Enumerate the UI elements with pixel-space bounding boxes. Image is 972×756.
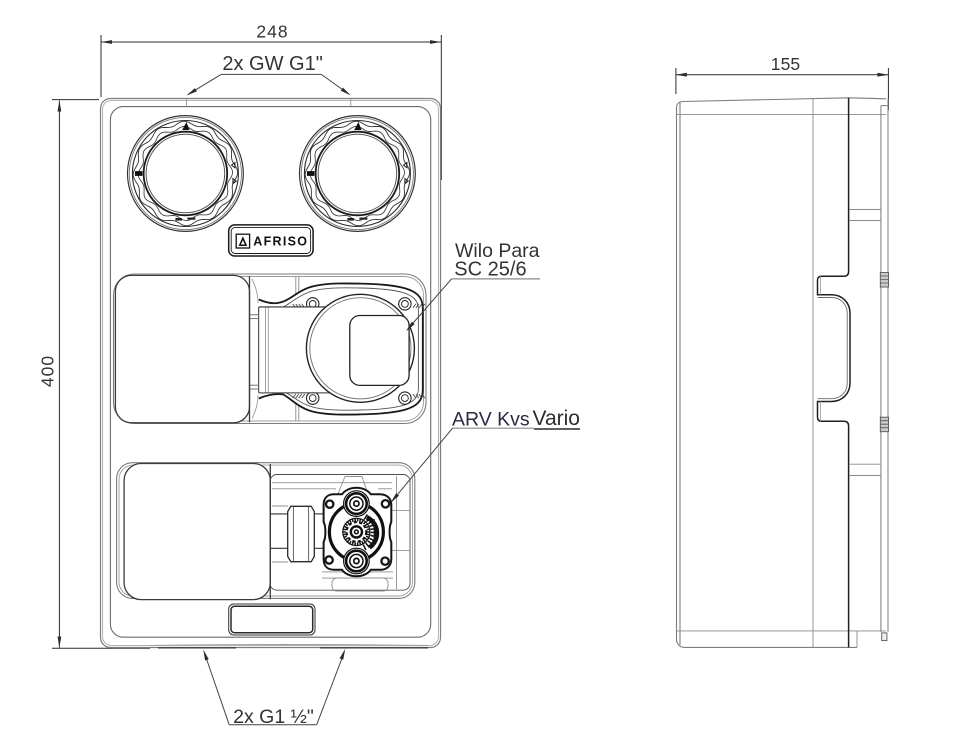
svg-text:155: 155 — [771, 54, 801, 74]
svg-text:400: 400 — [38, 355, 58, 387]
svg-text:AFRISO: AFRISO — [253, 234, 308, 248]
svg-text:SC 25/6: SC 25/6 — [454, 258, 526, 280]
svg-text:2x GW G1": 2x GW G1" — [222, 53, 322, 75]
svg-text:Vario: Vario — [533, 407, 580, 430]
svg-text:ARV Kvs: ARV Kvs — [452, 408, 530, 430]
svg-text:248: 248 — [256, 22, 288, 42]
